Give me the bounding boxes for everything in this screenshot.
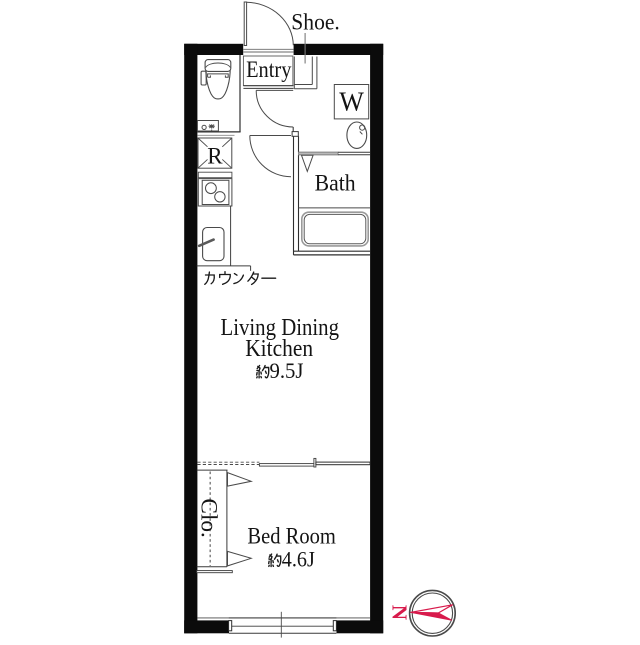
svg-text:9.5J: 9.5J (270, 358, 304, 383)
svg-text:Shoe.: Shoe. (291, 9, 340, 34)
svg-text:N: N (388, 605, 412, 620)
svg-text:4.6J: 4.6J (282, 547, 315, 572)
svg-text:Clo.: Clo. (195, 498, 221, 537)
svg-text:Entry: Entry (246, 57, 292, 82)
svg-text:W: W (339, 86, 364, 116)
svg-text:Bed Room: Bed Room (247, 523, 336, 548)
svg-text:R: R (207, 144, 223, 169)
svg-text:Bath: Bath (315, 171, 356, 196)
